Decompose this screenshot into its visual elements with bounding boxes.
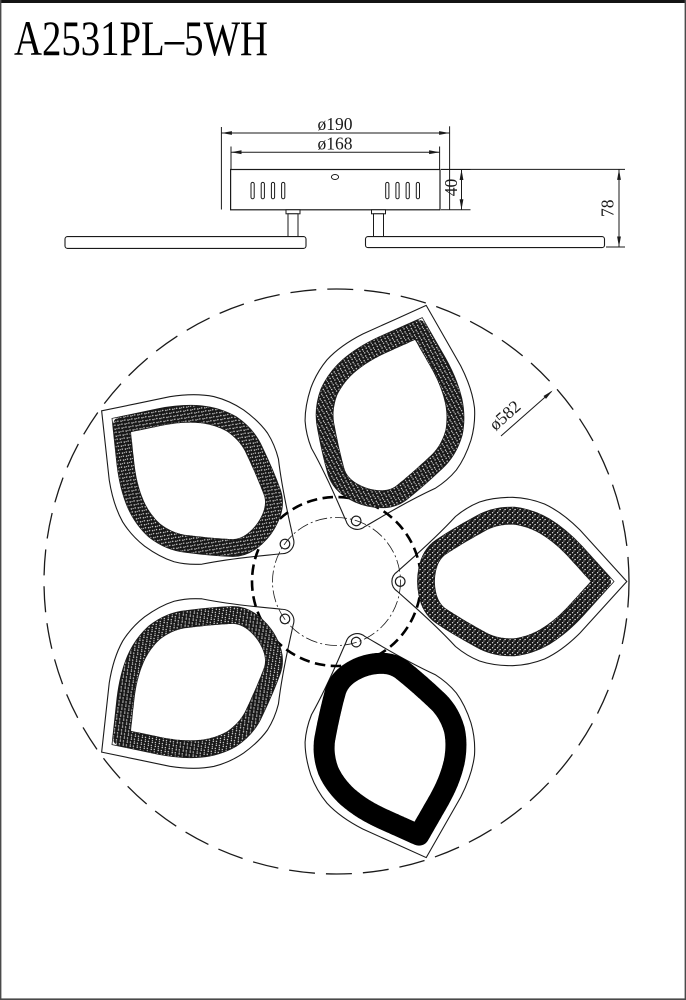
svg-text:ø168: ø168 xyxy=(318,133,353,153)
svg-text:78: 78 xyxy=(598,199,618,217)
svg-text:ø190: ø190 xyxy=(318,114,353,134)
svg-text:40: 40 xyxy=(441,179,461,197)
svg-text:A2531PL–5WH: A2531PL–5WH xyxy=(14,10,268,66)
